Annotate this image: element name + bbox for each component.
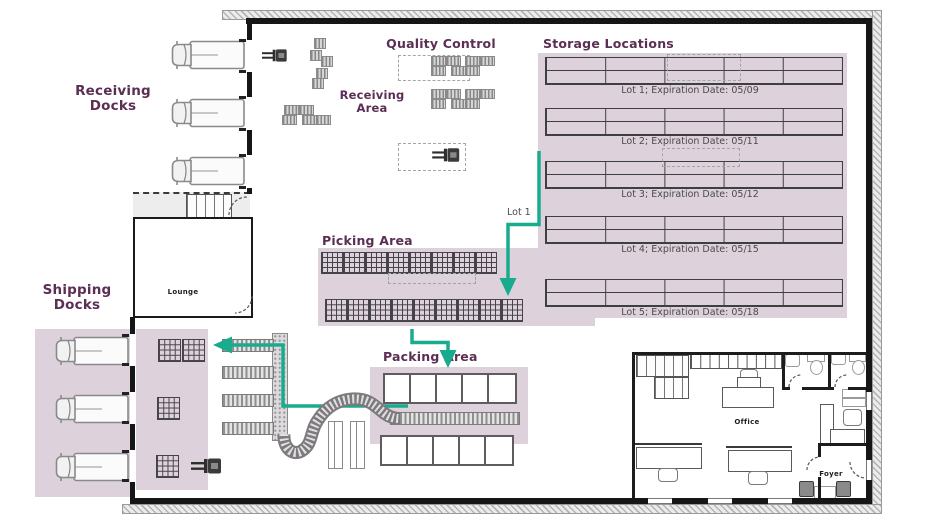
- pallet-icon: [452, 100, 465, 108]
- shelf: [842, 398, 866, 407]
- pallet-grid: [475, 252, 497, 274]
- storage-highlight-box: [662, 148, 740, 167]
- warehouse-floor-plan: Receiving Docks Shipping Docks Quality C…: [0, 0, 933, 525]
- pallet-icon: [432, 90, 445, 98]
- office-cabinets: [690, 354, 782, 369]
- office-desk: [728, 450, 792, 472]
- window: [768, 498, 792, 504]
- pallet-grid: [365, 252, 387, 274]
- pallet-grid: [321, 252, 343, 274]
- wall-receiving: [247, 18, 252, 40]
- office-wall-left: [632, 352, 635, 498]
- wall-receiving: [247, 72, 252, 97]
- bath-wall: [828, 352, 831, 390]
- pallet-grid: [409, 252, 431, 274]
- wall-shipping: [130, 366, 135, 392]
- packing-table: [487, 373, 517, 404]
- pallet-icon: [481, 57, 494, 65]
- forklift-icon: [191, 456, 225, 476]
- packing-table: [484, 435, 514, 466]
- bath-wall: [782, 387, 790, 390]
- wall-receiving: [247, 188, 252, 194]
- toilet-icon: [852, 360, 865, 375]
- armchair-icon: [836, 481, 851, 497]
- pallet-icon: [432, 67, 445, 75]
- lot3-label: Lot 3; Expiration Date: 05/12: [560, 189, 820, 200]
- truck-icon: [170, 156, 246, 186]
- pallet-icon: [322, 57, 332, 66]
- pallet-grid: [325, 299, 347, 322]
- pallet-grid: [156, 455, 179, 478]
- empty-rack: [350, 421, 365, 469]
- foyer-wall: [818, 443, 821, 457]
- pallet-icon: [447, 57, 460, 65]
- pallet-icon: [466, 90, 479, 98]
- pallet-grid: [453, 252, 475, 274]
- bath-wall: [802, 387, 834, 390]
- pallet-icon: [285, 106, 298, 114]
- wall-shipping: [130, 424, 135, 450]
- label-receiving-docks: Receiving Docks: [63, 84, 163, 114]
- label-picking-area: Picking Area: [322, 234, 432, 248]
- wall-receiving: [247, 130, 252, 155]
- pallet-grid: [343, 252, 365, 274]
- pallet-icon: [466, 100, 479, 108]
- storage-highlight-box: [667, 54, 741, 81]
- pallet-grid: [157, 397, 180, 420]
- office-chair: [748, 471, 768, 485]
- pallet-icon: [432, 100, 445, 108]
- truck-icon: [170, 40, 246, 70]
- pallet-icon: [317, 116, 330, 124]
- lounge-room: [133, 217, 253, 318]
- truck-icon: [170, 98, 246, 128]
- pallet-grid: [501, 299, 523, 322]
- truck-icon: [54, 452, 130, 482]
- pallet-icon: [466, 67, 479, 75]
- truck-icon: [54, 394, 130, 424]
- label-receiving-area: Receiving Area: [332, 89, 412, 114]
- window: [648, 498, 672, 504]
- office-chair: [658, 468, 678, 482]
- flow-lot1-label: Lot 1: [507, 207, 531, 218]
- pallet-grid: [431, 252, 453, 274]
- pallet-icon: [447, 90, 460, 98]
- lot5-label: Lot 5; Expiration Date: 05/18: [560, 307, 820, 318]
- window: [708, 498, 732, 504]
- pallet-grid: [413, 299, 435, 322]
- wall-shipping: [130, 317, 135, 334]
- conveyor-branch: [222, 422, 274, 435]
- wall-bottom: [130, 498, 872, 504]
- pallet-icon: [481, 90, 494, 98]
- pallet-grid: [387, 252, 409, 274]
- office-label: Office: [727, 418, 767, 426]
- label-quality-control: Quality Control: [386, 37, 496, 51]
- picking-highlight-box: [388, 273, 476, 284]
- pallet-grid: [391, 299, 413, 322]
- pallet-grid: [479, 299, 501, 322]
- wall-hatch-bottom: [122, 504, 882, 514]
- door-gap: [866, 460, 872, 480]
- bath-wall: [848, 387, 866, 390]
- pallet-icon: [317, 69, 327, 78]
- pallet-icon: [432, 57, 445, 65]
- storage-rack-lot2: [545, 108, 843, 136]
- pallet-icon: [303, 116, 316, 124]
- office-desk-center: [722, 387, 774, 408]
- pallet-icon: [300, 106, 313, 114]
- pallet-icon: [466, 57, 479, 65]
- pallet-grid: [182, 339, 205, 362]
- bath-wall: [782, 352, 785, 390]
- label-shipping-docks: Shipping Docks: [27, 283, 127, 313]
- conveyor-branch: [222, 339, 274, 352]
- empty-rack: [328, 421, 343, 469]
- label-packing-area: Packing Area: [383, 350, 493, 364]
- pallet-icon: [311, 51, 321, 60]
- privacy-panel: [634, 443, 702, 445]
- pallet-grid: [435, 299, 457, 322]
- lot2-label: Lot 2; Expiration Date: 05/11: [560, 136, 820, 147]
- window: [866, 392, 872, 410]
- foyer-label: Foyer: [811, 470, 851, 478]
- pallet-grid: [347, 299, 369, 322]
- label-storage-locations: Storage Locations: [543, 37, 703, 51]
- pallet-icon: [452, 67, 465, 75]
- pallet-icon: [315, 39, 325, 48]
- storage-rack-lot4: [545, 216, 843, 244]
- office-stairs: [636, 355, 689, 377]
- foyer-wall: [818, 443, 866, 446]
- pallet-grid: [369, 299, 391, 322]
- conveyor-branch: [222, 394, 274, 407]
- toilet-icon: [810, 360, 823, 375]
- wall-top: [246, 18, 872, 24]
- pallet-icon: [313, 79, 323, 88]
- forklift-icon: [432, 146, 463, 164]
- office-chair: [843, 409, 862, 426]
- pallet-icon: [283, 116, 296, 124]
- dock-stairs: [186, 194, 232, 218]
- lot1-label: Lot 1; Expiration Date: 05/09: [560, 85, 820, 96]
- conveyor-spine: [272, 333, 288, 441]
- conveyor-packing: [390, 412, 520, 425]
- foyer-wall: [818, 477, 821, 498]
- office-stairs: [654, 377, 689, 399]
- shelf: [842, 389, 866, 398]
- conveyor-branch: [222, 366, 274, 379]
- office-desk: [636, 447, 702, 469]
- sink-icon: [785, 354, 800, 367]
- wall-right: [866, 18, 872, 504]
- pallet-grid: [457, 299, 479, 322]
- lot4-label: Lot 4; Expiration Date: 05/15: [560, 244, 820, 255]
- truck-icon: [54, 336, 130, 366]
- storage-rack-lot5: [545, 279, 843, 307]
- armchair-icon: [799, 481, 814, 497]
- wall-hatch-right: [872, 10, 882, 514]
- privacy-panel: [726, 446, 792, 448]
- lounge-label: Lounge: [158, 288, 208, 296]
- pallet-grid: [158, 339, 181, 362]
- wall-shipping: [130, 482, 135, 498]
- forklift-icon: [262, 47, 290, 64]
